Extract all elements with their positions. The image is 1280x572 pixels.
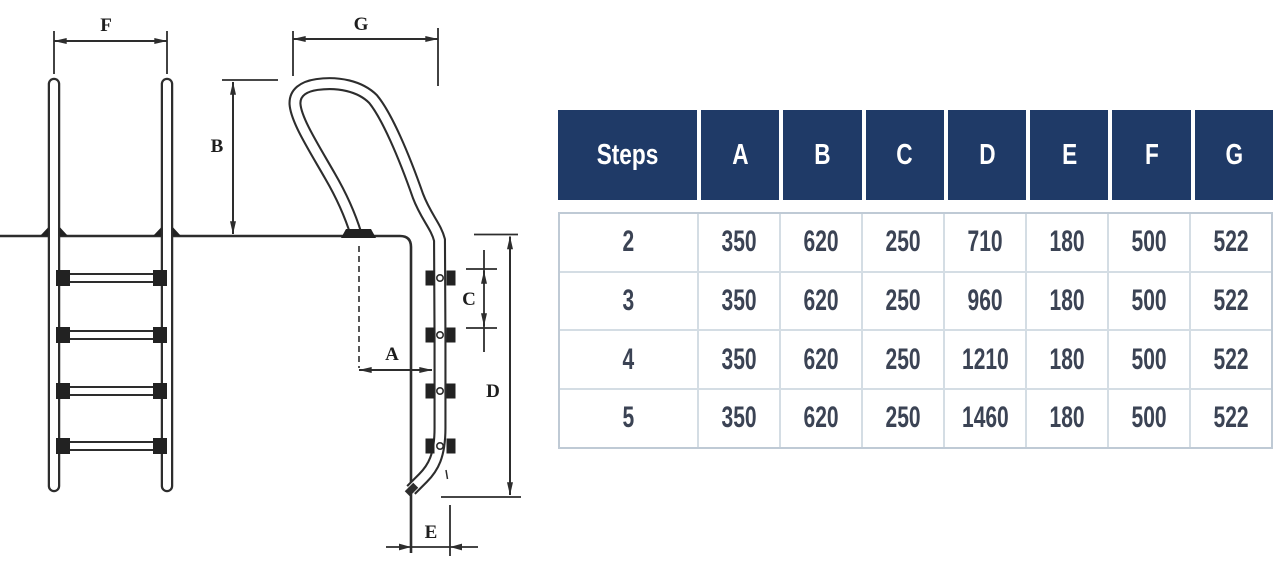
cell-f: 500 [1107,331,1189,388]
table-header-row: Steps A B C D E F G [558,110,1273,200]
cell-g: 522 [1189,214,1271,271]
cell-a: 350 [697,214,779,271]
header-cell-c: C [862,110,944,200]
cell-d: 1210 [943,331,1025,388]
dimension-table: Steps A B C D E F G 2 350 620 250 710 18… [558,110,1273,449]
dim-label-a: A [385,344,399,365]
cell-steps: 3 [560,273,697,330]
cell-c: 250 [861,390,943,447]
cell-b: 620 [779,214,861,271]
side-view-handrail [295,84,440,492]
dim-label-g: G [354,14,369,35]
cell-steps: 4 [560,331,697,388]
cell-d: 960 [943,273,1025,330]
cell-g: 522 [1189,273,1271,330]
header-cell-f: F [1108,110,1190,200]
header-label: D [979,139,995,172]
dimension-lines [54,28,521,556]
cell-e: 180 [1025,390,1107,447]
header-label: E [1062,139,1077,172]
cell-a: 350 [697,390,779,447]
header-cell-d: D [944,110,1026,200]
cell-b: 620 [779,390,861,447]
cell-c: 250 [861,214,943,271]
header-cell-a: A [697,110,779,200]
header-label: A [732,139,748,172]
table-row: 4 350 620 250 1210 180 500 522 [560,329,1271,388]
table-row: 2 350 620 250 710 180 500 522 [560,214,1271,271]
cell-b: 620 [779,331,861,388]
cell-b: 620 [779,273,861,330]
header-label: F [1145,139,1159,172]
cell-f: 500 [1107,390,1189,447]
handrail-flange [341,229,376,238]
table-row: 5 350 620 250 1460 180 500 522 [560,388,1271,447]
cell-d: 710 [943,214,1025,271]
dim-label-e: E [425,522,438,543]
dim-label-c: C [462,289,476,310]
header-label: C [897,139,913,172]
cell-g: 522 [1189,390,1271,447]
front-view-rails [54,84,167,486]
pool-ladder-spec-sheet: F B G A C D E Steps A B C D E F G 2 350 … [0,0,1280,572]
cell-e: 180 [1025,331,1107,388]
header-label: G [1225,139,1243,172]
cell-e: 180 [1025,273,1107,330]
cell-c: 250 [861,273,943,330]
deck-flanges-front [40,227,181,236]
cell-g: 522 [1189,331,1271,388]
cell-steps: 5 [560,390,697,447]
cell-a: 350 [697,273,779,330]
cell-e: 180 [1025,214,1107,271]
header-cell-e: E [1026,110,1108,200]
header-cell-steps: Steps [558,110,697,200]
dim-label-b: B [211,136,224,157]
cell-c: 250 [861,331,943,388]
table-body: 2 350 620 250 710 180 500 522 3 350 620 … [558,212,1273,449]
header-cell-g: G [1191,110,1273,200]
ladder-dimension-diagram: F B G A C D E [0,0,540,572]
header-label: B [814,139,830,172]
dim-label-d: D [486,381,500,402]
rung-clamps-front [56,270,167,454]
table-row: 3 350 620 250 960 180 500 522 [560,271,1271,330]
cell-f: 500 [1107,214,1189,271]
cell-steps: 2 [560,214,697,271]
front-view-rungs [66,278,155,446]
cell-f: 500 [1107,273,1189,330]
cell-a: 350 [697,331,779,388]
dim-label-f: F [100,15,112,36]
header-label: Steps [597,139,659,172]
rail-end-cap [409,487,414,492]
header-cell-b: B [779,110,861,200]
cell-d: 1460 [943,390,1025,447]
